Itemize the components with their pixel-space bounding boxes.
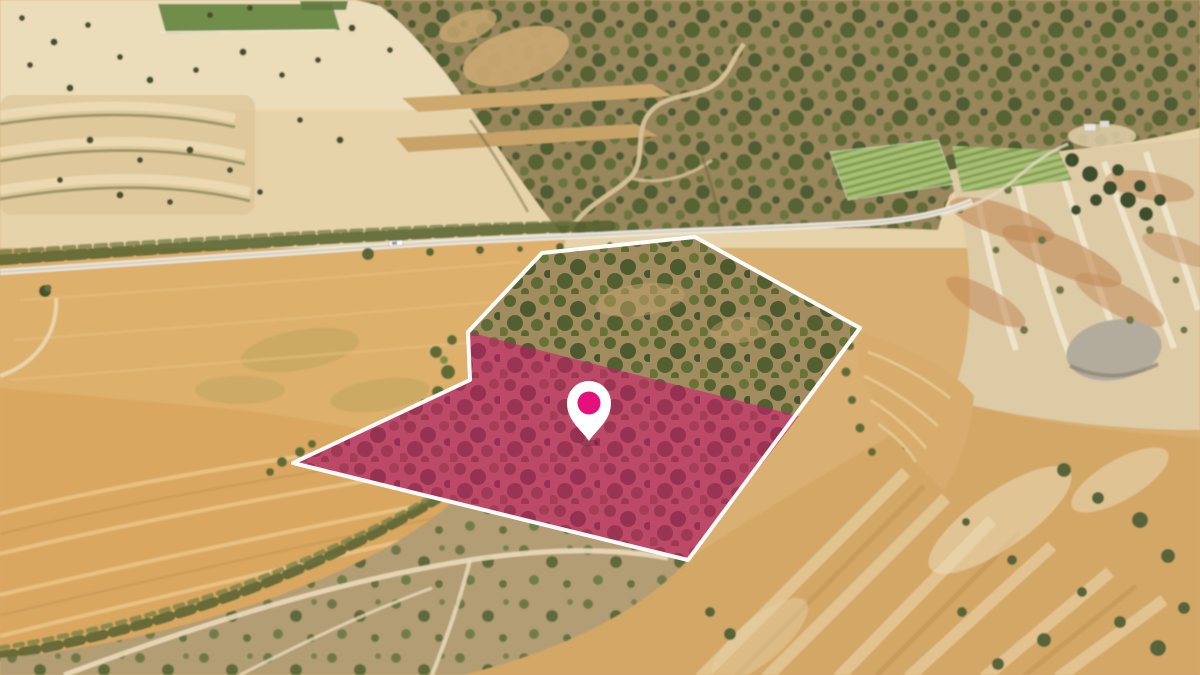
aerial-photo <box>0 0 1200 675</box>
aerial-photo-canvas <box>0 0 1200 675</box>
pin-dot <box>578 392 601 415</box>
